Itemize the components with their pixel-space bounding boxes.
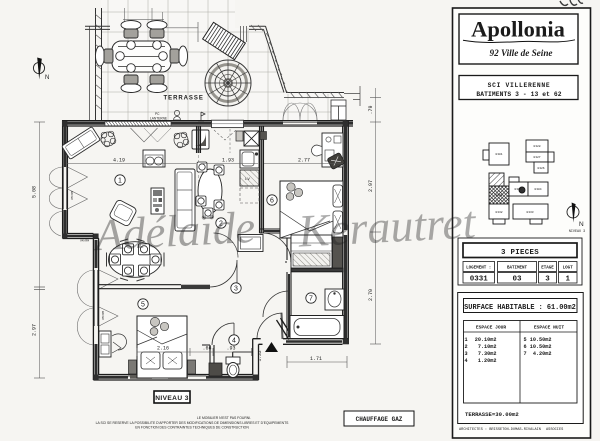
svg-text:.79: .79 [368, 105, 374, 114]
svg-text:4: 4 [465, 358, 468, 364]
svg-text:7: 7 [524, 351, 527, 357]
svg-text:ETAGE: ETAGE [541, 267, 554, 271]
svg-text:6: 6 [524, 344, 527, 350]
svg-text:4.20m2: 4.20m2 [533, 351, 552, 357]
svg-text:VM/RM: VM/RM [70, 191, 74, 200]
svg-text:Apollonia: Apollonia [471, 17, 565, 42]
svg-text:3: 3 [234, 286, 238, 293]
svg-text:BATIMENT: BATIMENT [507, 267, 528, 271]
svg-text:7.30m2: 7.30m2 [478, 351, 497, 357]
svg-text:5.08: 5.08 [32, 186, 38, 198]
svg-text:1: 1 [465, 337, 468, 343]
svg-text:2.70: 2.70 [368, 289, 374, 301]
svg-text:3: 3 [465, 351, 468, 357]
svg-text:TERRASSE: TERRASSE [164, 95, 204, 101]
svg-text:2: 2 [465, 344, 468, 350]
svg-text:0305: 0305 [514, 188, 521, 191]
svg-text:0332: 0332 [495, 211, 502, 214]
svg-text:2.16: 2.16 [157, 346, 169, 352]
svg-text:5: 5 [524, 337, 527, 343]
svg-text:2.97: 2.97 [32, 324, 38, 336]
svg-text:03: 03 [512, 276, 522, 284]
svg-text:1.33: 1.33 [257, 350, 263, 361]
svg-text:1.71: 1.71 [310, 356, 322, 362]
svg-text:SURFACE HABITABLE : 61.00m2: SURFACE HABITABLE : 61.00m2 [464, 304, 576, 312]
svg-text:BATIMENTS 3 - 13 et 62: BATIMENTS 3 - 13 et 62 [476, 91, 561, 98]
svg-text:NIVEAU 3: NIVEAU 3 [569, 230, 585, 234]
svg-text:0333: 0333 [526, 211, 533, 214]
svg-text:LE MOBILIER N'EST PAS FOURNI.: LE MOBILIER N'EST PAS FOURNI. [197, 416, 251, 420]
svg-text:20.10m2: 20.10m2 [475, 337, 497, 343]
svg-text:LA SCI SE RESERVE LA POSSIBILI: LA SCI SE RESERVE LA POSSIBILITE D'APPOR… [96, 421, 290, 425]
svg-text:ESPACE JOUR: ESPACE JOUR [476, 325, 507, 331]
svg-text:ARCHITECTES : BRISSETON-DUMAS-: ARCHITECTES : BRISSETON-DUMAS-RIVALAIN [459, 428, 541, 432]
svg-text:0326: 0326 [537, 167, 544, 170]
svg-text:7.10m2: 7.10m2 [478, 344, 497, 350]
svg-text:LOGEMENT :: LOGEMENT : [466, 267, 491, 271]
svg-text:ASSOCIES: ASSOCIES [546, 428, 563, 432]
svg-text:Adélaïde: Adélaïde [91, 202, 256, 260]
svg-text:.66: .66 [202, 346, 211, 352]
svg-text:0327: 0327 [533, 156, 540, 159]
svg-text:1.20m2: 1.20m2 [478, 358, 497, 364]
svg-text:0301: 0301 [495, 153, 502, 156]
svg-text:1.93: 1.93 [222, 158, 234, 164]
svg-text:N: N [579, 221, 584, 228]
svg-text:1: 1 [118, 178, 122, 185]
svg-text:TERRASSE=30.00m2: TERRASSE=30.00m2 [465, 411, 519, 418]
svg-text:7: 7 [309, 296, 313, 303]
svg-text:10.50m2: 10.50m2 [530, 337, 552, 343]
svg-text:SCI VILLERENNE: SCI VILLERENNE [488, 82, 551, 89]
svg-text:3: 3 [545, 276, 550, 284]
svg-text:0328: 0328 [533, 145, 540, 148]
svg-text:2.97: 2.97 [368, 180, 374, 192]
svg-text:6: 6 [270, 198, 274, 205]
svg-text:Kerautret: Kerautret [296, 196, 478, 256]
svg-text:ESPACE NUIT: ESPACE NUIT [534, 325, 565, 331]
svg-text:VM/RM: VM/RM [80, 239, 89, 243]
svg-text:92 Ville de Seine: 92 Ville de Seine [489, 48, 552, 58]
svg-text:EN FONCTION DES CONTRAINTES TE: EN FONCTION DES CONTRAINTES TECHNIQUES D… [135, 425, 249, 429]
svg-text:CHAUFFAGE GAZ: CHAUFFAGE GAZ [356, 416, 403, 423]
svg-text:LANTERNE: LANTERNE [150, 117, 167, 121]
svg-text:NIVEAU 3: NIVEAU 3 [155, 395, 189, 402]
svg-text:LOGT: LOGT [563, 267, 574, 271]
svg-text:5: 5 [141, 302, 145, 309]
svg-text:N: N [45, 75, 49, 81]
svg-text:0331: 0331 [495, 194, 502, 197]
svg-text:VM/RM: VM/RM [101, 311, 105, 320]
svg-text:10.50m2: 10.50m2 [530, 344, 552, 350]
svg-text:LV: LV [245, 178, 250, 182]
svg-text:0304: 0304 [534, 188, 541, 191]
svg-text:3 PIECES: 3 PIECES [501, 249, 539, 257]
svg-text:4.19: 4.19 [113, 158, 125, 164]
svg-text:PC: PC [155, 112, 160, 116]
svg-text:4: 4 [232, 338, 236, 345]
svg-text:0331: 0331 [470, 276, 489, 284]
svg-text:.93: .93 [226, 346, 235, 352]
svg-text:1: 1 [565, 276, 570, 284]
svg-text:2.77: 2.77 [298, 158, 310, 164]
